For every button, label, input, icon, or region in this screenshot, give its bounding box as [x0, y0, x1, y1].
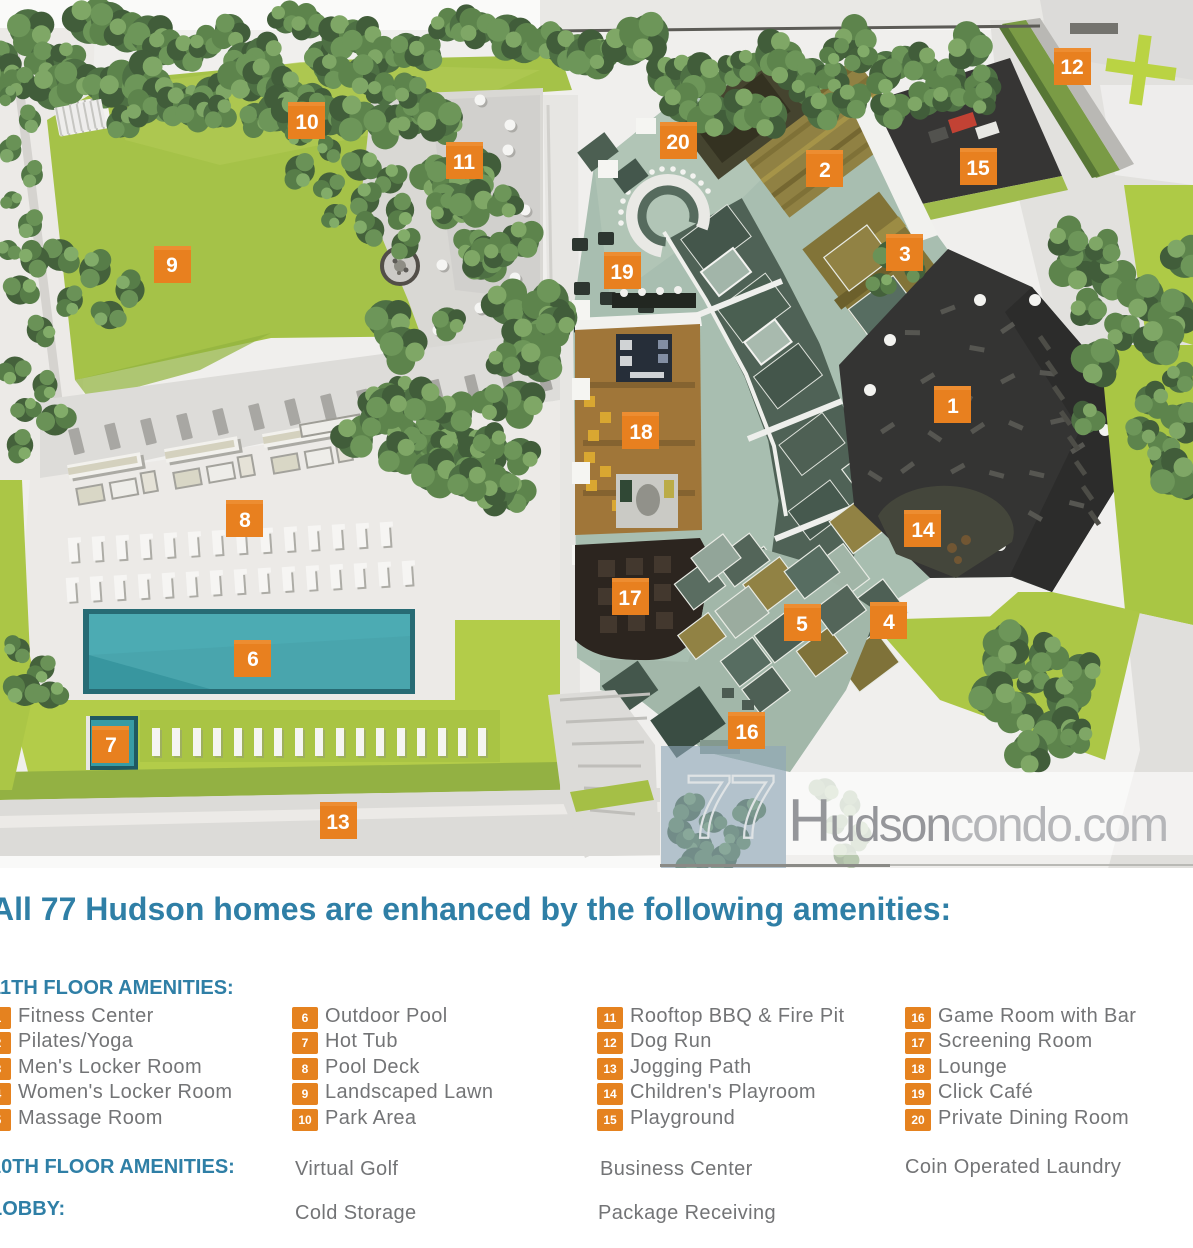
svg-text:1: 1 — [947, 395, 959, 418]
svg-text:16: 16 — [735, 721, 758, 744]
svg-text:20: 20 — [666, 131, 689, 154]
svg-text:77: 77 — [684, 758, 774, 858]
svg-text:3: 3 — [899, 243, 911, 266]
svg-text:4: 4 — [883, 611, 895, 634]
svg-text:8: 8 — [239, 509, 251, 532]
svg-text:5: 5 — [796, 613, 808, 636]
svg-text:17: 17 — [618, 587, 641, 610]
svg-text:13: 13 — [326, 811, 349, 834]
svg-text:6: 6 — [247, 648, 259, 671]
svg-text:7: 7 — [105, 734, 117, 757]
svg-text:14: 14 — [911, 519, 935, 542]
svg-text:15: 15 — [966, 157, 990, 180]
svg-text:19: 19 — [610, 261, 633, 284]
svg-text:18: 18 — [629, 421, 653, 444]
svg-text:10: 10 — [295, 111, 318, 134]
svg-text:12: 12 — [1060, 56, 1083, 79]
svg-text:9: 9 — [166, 254, 178, 277]
svg-text:2: 2 — [819, 159, 831, 182]
svg-text:11: 11 — [453, 151, 476, 174]
